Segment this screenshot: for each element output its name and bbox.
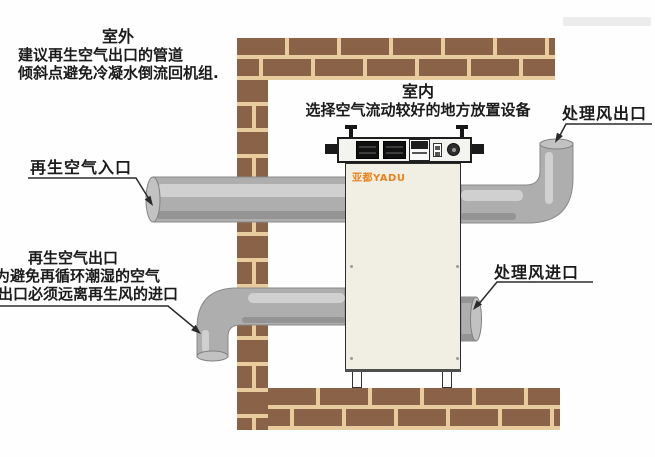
- leader-line: [0, 306, 197, 330]
- arrowhead-icon: [555, 133, 563, 143]
- regen-outlet-line-2: 出口必须远离再生风的进口: [0, 285, 178, 303]
- label-regen-air-outlet: 再生空气出口 为避免再循环潮湿的空气 出口必须远离再生风的进口: [0, 249, 178, 303]
- outdoor-note: 室外 建议再生空气出口的管道 倾斜点避免冷凝水倒流回机组.: [18, 28, 218, 82]
- outdoor-line-2: 倾斜点避免冷凝水倒流回机组.: [18, 64, 219, 82]
- regen-outlet-line-1: 为避免再循环潮湿的空气: [0, 267, 160, 285]
- label-treated-air-inlet: 处理风进口: [494, 264, 579, 282]
- indoor-title: 室内: [300, 82, 536, 101]
- label-treated-air-outlet: 处理风出口: [562, 105, 647, 123]
- installation-diagram: 亚都YADU 室外 建议再生空气出口的管道 倾斜点避免冷凝水倒流回机组. 室内 …: [0, 0, 655, 457]
- outdoor-line-1: 建议再生空气出口的管道: [18, 46, 183, 64]
- outdoor-title: 室外: [18, 28, 218, 46]
- leader-line: [558, 124, 652, 139]
- label-regen-air-inlet: 再生空气入口: [30, 159, 132, 177]
- leader-line: [478, 282, 593, 305]
- indoor-note: 室内 选择空气流动较好的地方放置设备: [300, 82, 536, 120]
- indoor-subtitle: 选择空气流动较好的地方放置设备: [305, 101, 530, 119]
- arrowhead-icon: [145, 196, 153, 206]
- regen-outlet-title: 再生空气出口: [28, 249, 118, 267]
- leader-line: [28, 178, 149, 199]
